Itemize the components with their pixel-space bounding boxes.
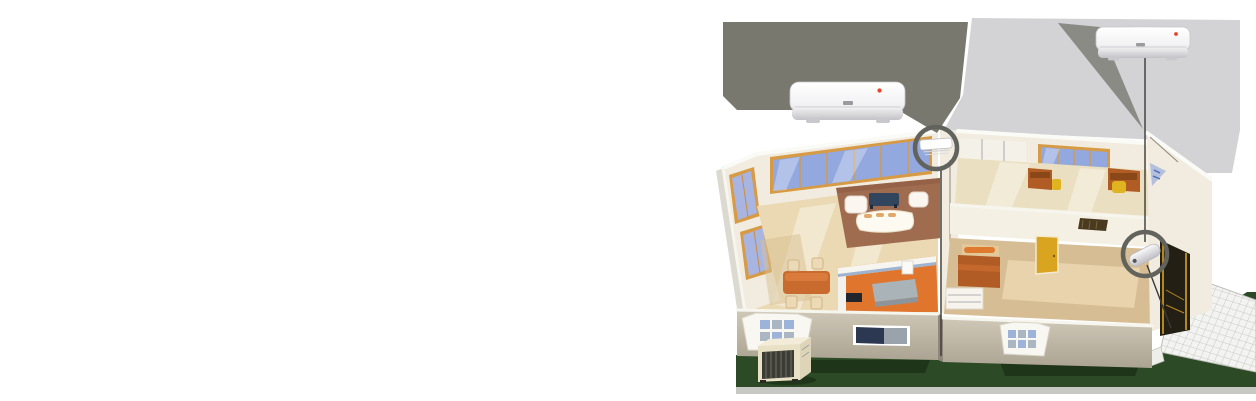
office-chair-right <box>1112 181 1126 193</box>
ac-product-right <box>1096 27 1190 60</box>
stove <box>846 293 862 302</box>
ac-product-left <box>790 82 905 123</box>
office-room <box>955 131 1150 218</box>
entry-doorway <box>1160 240 1190 336</box>
brand-logo-mark <box>843 101 853 105</box>
illustration-svg <box>0 0 1256 401</box>
bedroom-door <box>1036 236 1058 274</box>
sofa-set <box>836 178 951 248</box>
brand-logo-mark <box>1136 43 1145 46</box>
desk-right <box>1108 168 1140 193</box>
left-product-callout <box>723 22 968 133</box>
dresser <box>946 288 983 309</box>
right-section <box>944 131 1212 336</box>
indicator-light <box>877 88 881 92</box>
curved-sofa <box>856 210 913 232</box>
house-cutaway <box>716 130 1256 394</box>
outdoor-unit-grille <box>762 350 794 379</box>
armchair-left <box>845 196 867 213</box>
fridge <box>902 261 913 274</box>
recessed-window <box>853 325 910 346</box>
office-chair-left <box>1052 179 1061 190</box>
armchair-right <box>909 192 928 207</box>
bay-window-right <box>1000 322 1050 356</box>
bed <box>958 244 1000 288</box>
ac-installation-illustration <box>0 0 1256 401</box>
outdoor-unit <box>758 337 816 385</box>
wall-vent <box>1078 218 1108 231</box>
ground-edge <box>736 387 1256 394</box>
indicator-light <box>1174 32 1178 36</box>
